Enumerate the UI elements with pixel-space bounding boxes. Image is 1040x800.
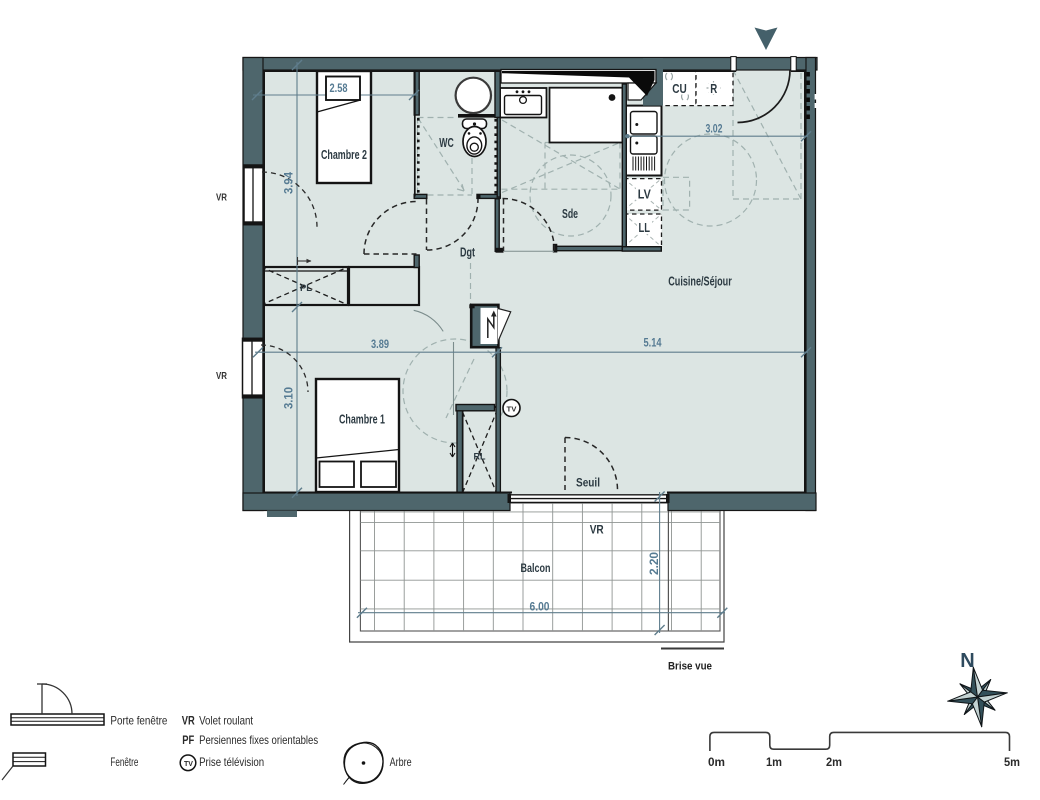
svg-text:TV: TV [184, 761, 193, 768]
svg-text:1m: 1m [766, 755, 782, 769]
svg-text:2.20: 2.20 [647, 552, 661, 575]
svg-text:Porte fenêtre: Porte fenêtre [110, 714, 167, 728]
svg-text:RL: RL [474, 452, 486, 462]
svg-text:6.00: 6.00 [530, 600, 550, 614]
svg-text:Volet roulant: Volet roulant [199, 714, 254, 728]
svg-text:VR: VR [590, 525, 605, 537]
svg-text:3.94: 3.94 [282, 172, 296, 194]
svg-text:WC: WC [439, 135, 454, 150]
svg-text:PL: PL [300, 283, 312, 294]
svg-text:3.02: 3.02 [706, 121, 723, 135]
svg-text:Sde: Sde [562, 206, 578, 221]
svg-text:3.89: 3.89 [371, 337, 389, 351]
svg-text:3.10: 3.10 [282, 387, 296, 409]
svg-text:2.58: 2.58 [330, 81, 348, 95]
svg-text:2m: 2m [826, 755, 842, 769]
svg-text:N: N [960, 650, 974, 672]
svg-text:Chambre 2: Chambre 2 [321, 147, 367, 162]
svg-text:Fenêtre: Fenêtre [110, 755, 138, 769]
svg-text:5.14: 5.14 [644, 336, 662, 350]
svg-text:Seuil: Seuil [576, 476, 600, 490]
svg-text:TV: TV [507, 404, 517, 413]
svg-text:Chambre 1: Chambre 1 [339, 412, 385, 427]
svg-text:0m: 0m [708, 755, 725, 769]
svg-text:PF: PF [182, 733, 194, 747]
svg-text:Dgt: Dgt [460, 245, 475, 260]
svg-text:Brise vue: Brise vue [668, 661, 712, 673]
svg-text:Balcon: Balcon [521, 561, 551, 575]
svg-text:5m: 5m [1004, 755, 1020, 769]
svg-text:CU: CU [672, 82, 687, 96]
svg-text:Arbre: Arbre [390, 755, 412, 769]
svg-text:VR: VR [216, 370, 227, 382]
svg-text:VR: VR [216, 192, 227, 204]
svg-text:LL: LL [639, 221, 651, 235]
svg-text:Cuisine/Séjour: Cuisine/Séjour [668, 274, 732, 289]
svg-text:VR: VR [182, 714, 195, 728]
svg-text:LV: LV [638, 188, 652, 202]
svg-text:R: R [710, 82, 717, 96]
svg-text:Prise télévision: Prise télévision [199, 755, 264, 769]
svg-text:Persiennes fixes orientables: Persiennes fixes orientables [199, 733, 318, 747]
